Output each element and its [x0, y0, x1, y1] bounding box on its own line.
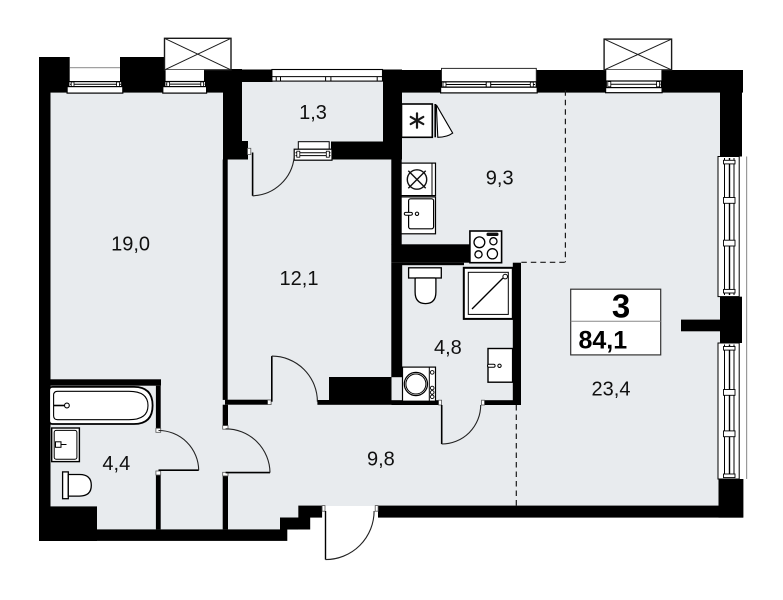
- svg-text:12,1: 12,1: [280, 268, 319, 290]
- svg-text:3: 3: [612, 288, 630, 325]
- svg-text:19,0: 19,0: [111, 234, 150, 256]
- svg-text:9,8: 9,8: [367, 449, 395, 471]
- svg-text:4,8: 4,8: [434, 337, 462, 359]
- svg-text:9,3: 9,3: [486, 168, 514, 190]
- svg-text:4,4: 4,4: [102, 453, 130, 475]
- svg-text:1,3: 1,3: [299, 102, 327, 124]
- svg-text:23,4: 23,4: [592, 378, 631, 400]
- svg-text:84,1: 84,1: [579, 327, 628, 355]
